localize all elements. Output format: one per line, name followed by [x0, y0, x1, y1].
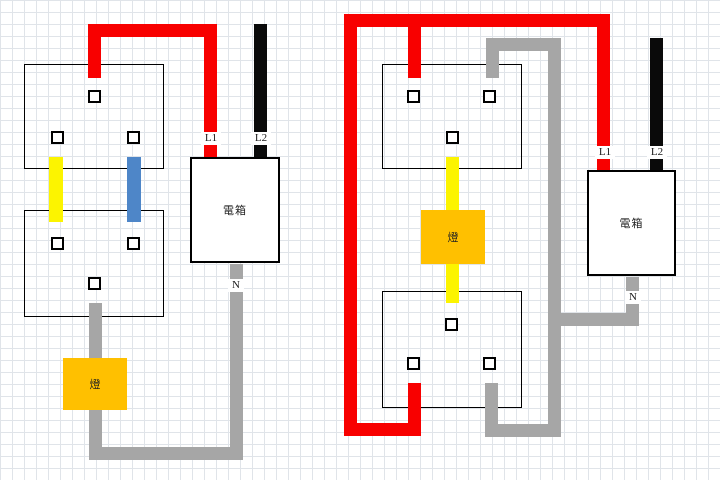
neutral-wire-right-riser — [548, 38, 561, 437]
n-label: N — [228, 279, 244, 292]
panel-label: 電箱 — [620, 215, 644, 231]
panel-box: 電箱 — [190, 157, 280, 263]
neutral-wire-bottom-run — [89, 447, 243, 460]
terminal-square — [407, 90, 420, 103]
switch-box-top-left — [24, 64, 164, 169]
terminal-square — [127, 237, 140, 250]
traveler-yellow-wire — [49, 157, 63, 222]
live-wire-drop-into-top-switch — [408, 14, 421, 78]
traveler-blue-wire — [127, 157, 141, 222]
lamp-box: 燈 — [421, 210, 485, 264]
l2-label: L2 — [647, 146, 667, 159]
neutral-wire-switch-to-lamp — [89, 303, 102, 358]
terminal-square — [88, 90, 101, 103]
neutral-wire-up-to-panel — [230, 264, 243, 460]
lamp-box: 燈 — [63, 358, 127, 410]
terminal-square — [88, 277, 101, 290]
terminal-square — [407, 357, 420, 370]
n-label: N — [625, 291, 641, 304]
terminal-square — [483, 357, 496, 370]
live-wire-drop-into-switch — [88, 24, 101, 78]
neutral-wire-drop-into-top-switch — [486, 38, 499, 78]
neutral-wire-stub-from-bottom-switch — [485, 383, 498, 424]
live-wire-stub-into-bottom-switch — [408, 383, 421, 436]
terminal-square — [51, 131, 64, 144]
live-wire-left-riser — [344, 14, 357, 436]
switch-box-top-right — [382, 64, 522, 169]
terminal-square — [51, 237, 64, 250]
switch-box-bottom-left — [24, 210, 164, 317]
terminal-square — [445, 318, 458, 331]
neutral-wire-bottom-run — [485, 424, 561, 437]
lamp-label: 燈 — [90, 376, 101, 392]
panel-box: 電箱 — [587, 170, 676, 276]
live-wire-horizontal — [88, 24, 217, 37]
l1-label: L1 — [201, 132, 221, 145]
live-wire-top-run — [344, 14, 610, 27]
terminal-square — [483, 90, 496, 103]
l2-label: L2 — [251, 132, 271, 145]
l1-label: L1 — [595, 146, 615, 159]
terminal-square — [446, 131, 459, 144]
terminal-square — [127, 131, 140, 144]
grid-canvas: 燈 電箱 L1 L2 N — [0, 0, 720, 480]
lamp-label: 燈 — [448, 229, 459, 245]
panel-label: 電箱 — [223, 202, 247, 218]
switch-box-bottom-right — [382, 291, 522, 408]
